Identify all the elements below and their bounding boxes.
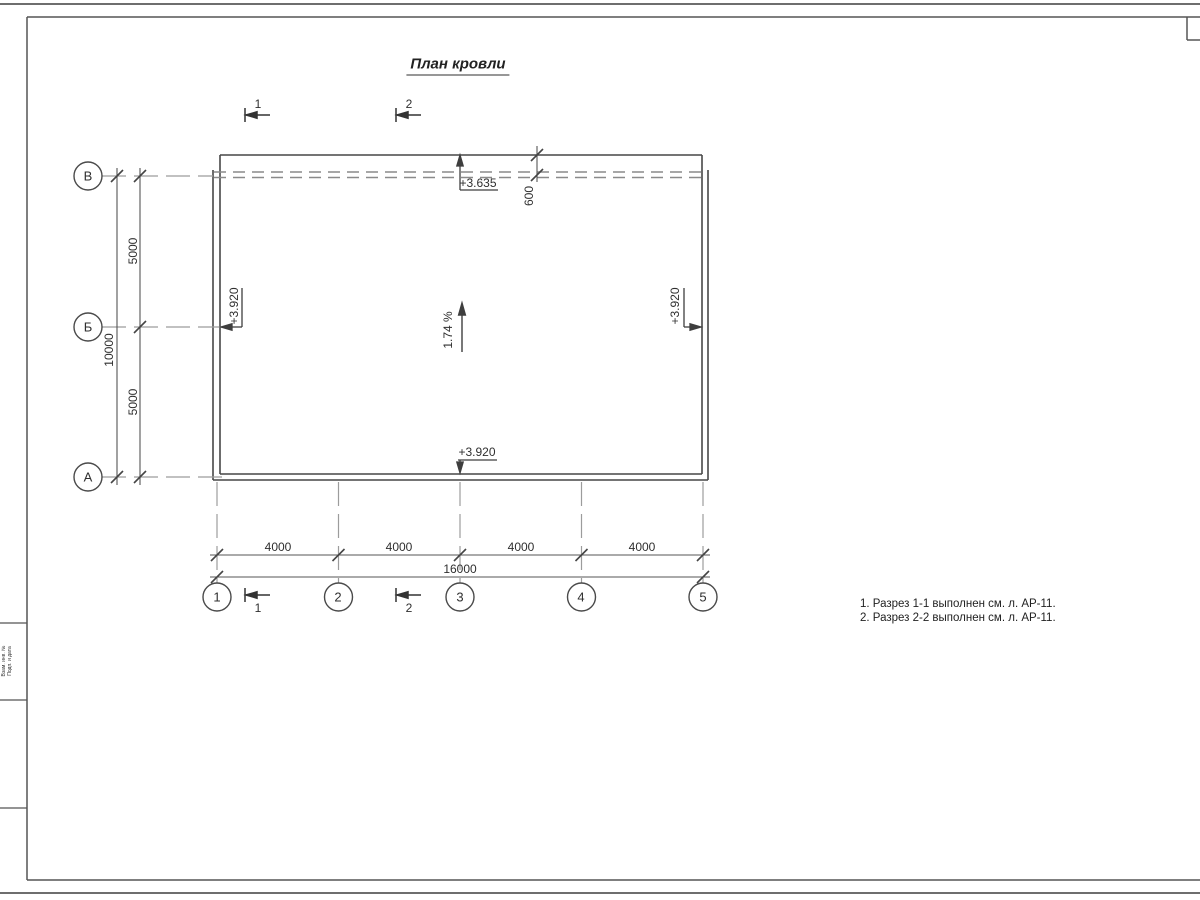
drawing-sheet: План кровли 1 2 1 2 В Б А 1 2 3 4 5 4000… xyxy=(0,0,1200,900)
axis-col-3: 3 xyxy=(456,591,463,604)
dim-row-span-2: 5000 xyxy=(127,389,139,416)
drawing-title: План кровли xyxy=(406,57,509,76)
dimension-ticks xyxy=(111,149,709,583)
dim-row-span-1: 5000 xyxy=(127,238,139,265)
section-mark-bottom-1: 1 xyxy=(255,602,262,614)
section-mark-top-1: 1 xyxy=(255,98,262,110)
axis-col-5: 5 xyxy=(699,591,706,604)
axis-col-4: 4 xyxy=(577,591,584,604)
slope-arrow xyxy=(459,303,466,352)
elevation-left: +3.920 xyxy=(228,287,240,324)
dimension-lines xyxy=(117,146,710,577)
section-mark-bottom-2: 2 xyxy=(406,602,413,614)
axis-col-1: 1 xyxy=(213,591,220,604)
hidden-edge-dashed xyxy=(214,172,702,178)
slope-label: 1.74 % xyxy=(442,311,454,348)
dim-total-width: 16000 xyxy=(443,563,476,575)
axis-row-v: В xyxy=(84,170,93,183)
dim-span-3: 4000 xyxy=(508,541,535,553)
elevation-bottom: +3.920 xyxy=(458,446,495,458)
inner-frame xyxy=(27,17,1200,880)
axis-row-b: Б xyxy=(84,321,93,334)
roof-outline xyxy=(213,155,708,480)
dim-span-1: 4000 xyxy=(265,541,292,553)
dim-eave: 600 xyxy=(523,186,535,206)
section-mark-top-2: 2 xyxy=(406,98,413,110)
margin-stamp-text: Взам. инв. № Подп. и дата xyxy=(1,646,13,677)
elevation-top: +3.635 xyxy=(459,177,496,189)
axis-row-a: А xyxy=(84,471,93,484)
sheet-frame xyxy=(0,4,1200,893)
note-line-2: 2. Разрез 2-2 выполнен см. л. АР-11. xyxy=(860,612,1056,626)
notes-block: 1. Разрез 1-1 выполнен см. л. АР-11. 2. … xyxy=(860,598,1056,625)
axis-col-2: 2 xyxy=(334,591,341,604)
elevation-right: +3.920 xyxy=(669,287,681,324)
note-line-1: 1. Разрез 1-1 выполнен см. л. АР-11. xyxy=(860,598,1056,612)
dim-span-4: 4000 xyxy=(629,541,656,553)
margin-stamp-line-2: Подп. и дата xyxy=(7,646,13,677)
dim-total-height: 10000 xyxy=(103,333,115,366)
dim-span-2: 4000 xyxy=(386,541,413,553)
axis-lines xyxy=(102,176,703,583)
drawing-linework xyxy=(0,0,1200,900)
section-marks xyxy=(245,108,421,602)
